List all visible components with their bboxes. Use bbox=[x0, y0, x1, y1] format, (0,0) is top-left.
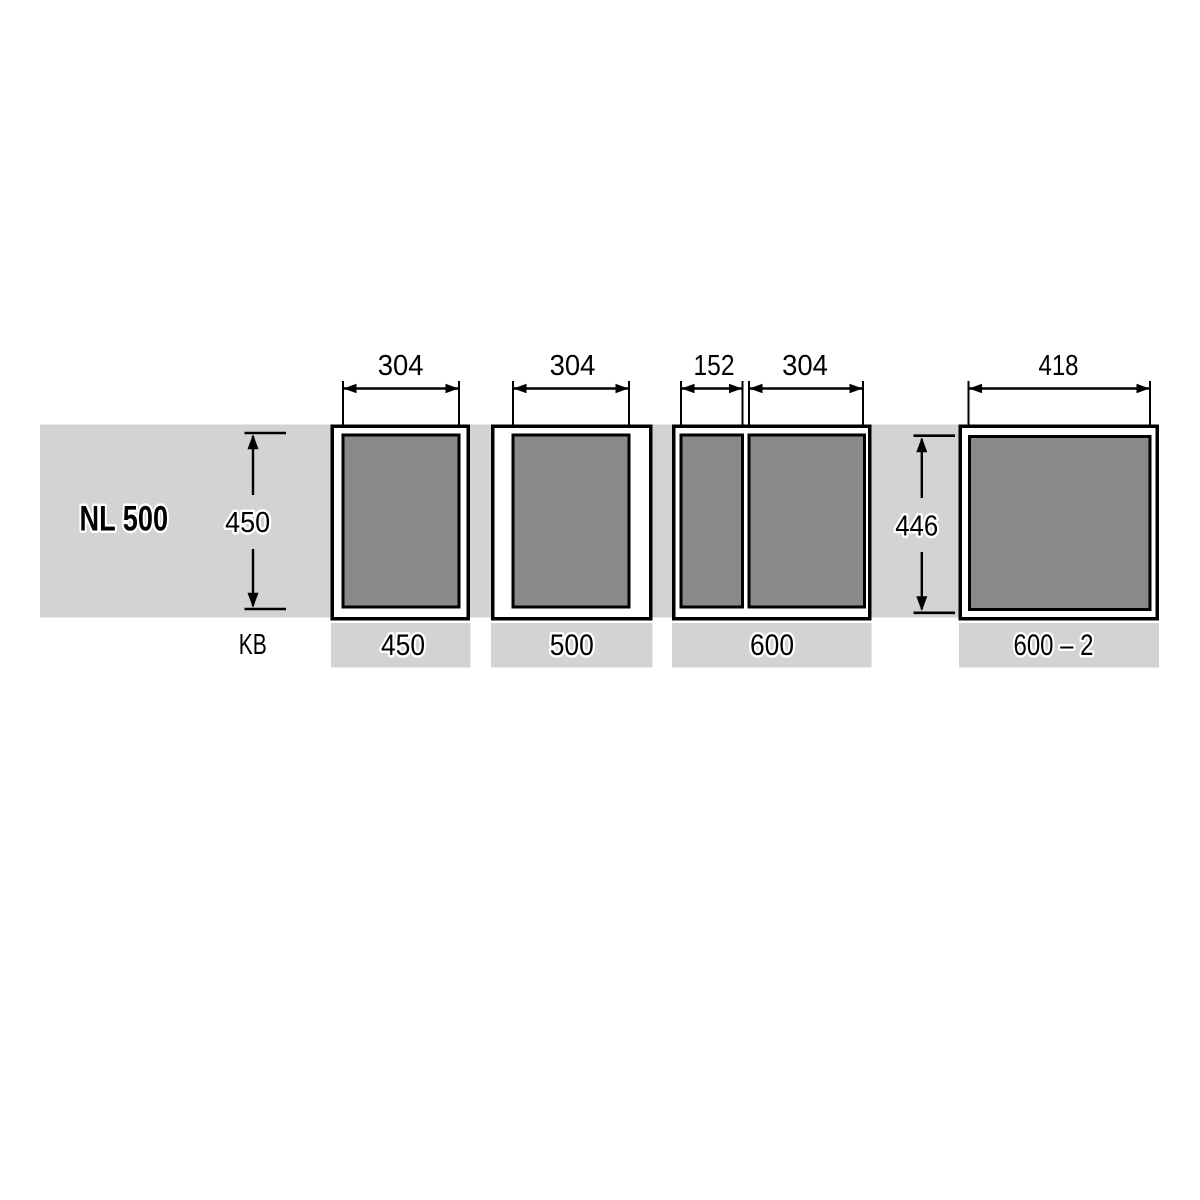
svg-text:600 – 2: 600 – 2 bbox=[1014, 629, 1094, 662]
svg-text:500: 500 bbox=[550, 629, 594, 662]
svg-text:304: 304 bbox=[378, 350, 424, 382]
svg-text:304: 304 bbox=[782, 350, 828, 382]
svg-text:152: 152 bbox=[694, 350, 735, 382]
svg-text:446: 446 bbox=[895, 510, 938, 542]
svg-text:418: 418 bbox=[1039, 350, 1079, 382]
svg-text:450: 450 bbox=[381, 629, 425, 662]
svg-text:600: 600 bbox=[750, 629, 794, 662]
svg-text:450: 450 bbox=[225, 507, 270, 539]
svg-text:KB: KB bbox=[239, 629, 267, 661]
svg-text:304: 304 bbox=[550, 350, 596, 382]
svg-text:NL 500: NL 500 bbox=[80, 498, 169, 538]
